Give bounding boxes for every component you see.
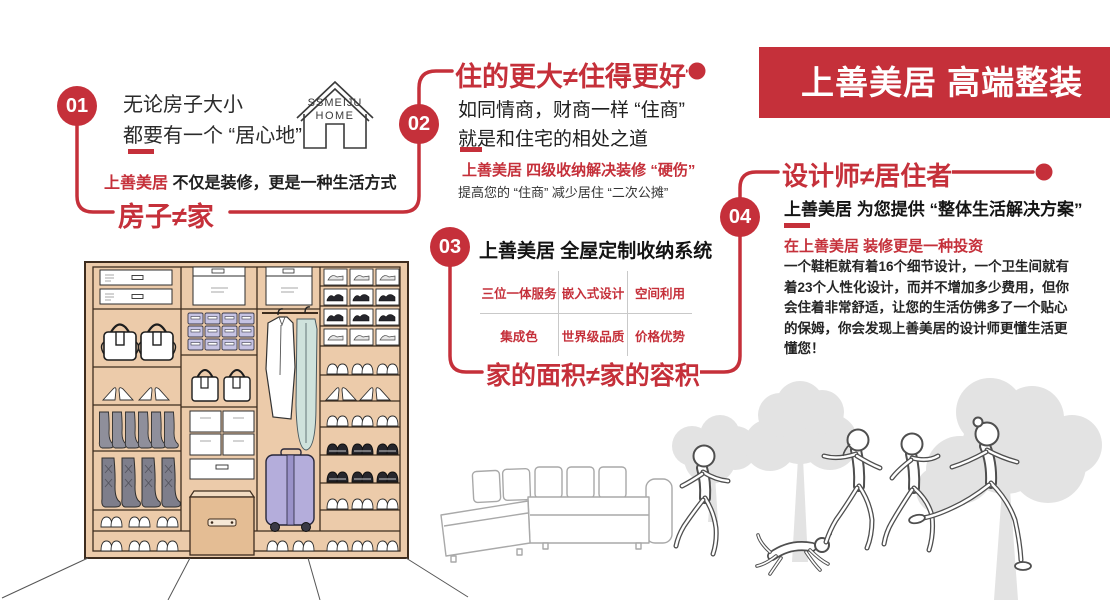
- section2-subline-black: 提高您的 “住商” 减少居住 “二次公摊”: [458, 182, 668, 201]
- step-circle-04: 04: [720, 197, 760, 237]
- section1-sub-brand: 上善美居: [104, 175, 168, 192]
- home-logo-icon: SSMEIJU HOME: [291, 74, 379, 154]
- brand-banner-title: 上善美居 高端整装: [759, 47, 1110, 118]
- running-family-scene: [640, 350, 1110, 600]
- sofa-illustration: [433, 453, 678, 565]
- section4-title: 上善美居 为您提供 “整体生活解决方案”: [784, 195, 1082, 220]
- section4-headline: 设计师≠居住者: [782, 156, 952, 193]
- section2-body: 如同情商，财商一样 “住商” 就是和住宅的相处之道: [458, 96, 685, 154]
- grid-cell: 价格优势: [628, 313, 692, 356]
- section1-headline: 房子≠家: [118, 195, 214, 234]
- tree-silhouette: [672, 378, 1102, 600]
- step-circle-03: 03: [430, 227, 470, 267]
- section4-dash: [784, 223, 810, 228]
- connector-dot: [1036, 164, 1053, 181]
- logo-text-line1: SSMEIJU: [308, 97, 363, 109]
- section4-paragraph: 一个鞋柜就有着16个细节设计，一个卫生间就有着23个人性化设计，而并不增加多少费…: [784, 257, 1076, 360]
- grid-cell: 世界级品质: [558, 313, 628, 356]
- section1-line2: 都要有一个 “居心地”: [123, 121, 302, 152]
- section3-headline: 家的面积≠家的容积: [486, 356, 700, 392]
- step-number: 04: [729, 206, 751, 228]
- section3-title: 上善美居 全屋定制收纳系统: [479, 236, 712, 263]
- section1-line1: 无论房子大小: [123, 90, 302, 121]
- logo-text-line2: HOME: [316, 110, 355, 122]
- grid-cell: 空间利用: [628, 271, 692, 313]
- section2-line2: 就是和住宅的相处之道: [458, 125, 685, 154]
- section2-headline: 住的更大≠住得更好: [455, 55, 686, 94]
- step-number: 03: [439, 236, 461, 258]
- poster: 上善美居 高端整装 SSMEIJU HOME 01 02 03 04 无论房子大…: [0, 0, 1110, 600]
- brand-banner: 上善美居 高端整装: [759, 47, 1110, 118]
- step-number: 01: [66, 95, 88, 117]
- connector-dot: [689, 63, 706, 80]
- grid-cell: 三位一体服务: [480, 271, 558, 313]
- section1-subline: 上善美居 不仅是装修，更是一种生活方式: [104, 169, 396, 193]
- section1-dash: [128, 149, 154, 154]
- grid-cell: 嵌入式设计: [558, 271, 628, 313]
- floor-lines: [2, 558, 468, 600]
- section2-line1: 如同情商，财商一样 “住商”: [458, 96, 685, 125]
- wardrobe-illustration: [0, 255, 480, 600]
- section3-feature-grid: 三位一体服务 嵌入式设计 空间利用 集成色 世界级品质 价格优势: [480, 271, 692, 356]
- section1-body: 无论房子大小 都要有一个 “居心地”: [123, 90, 302, 152]
- section4-subline-red: 在上善美居 装修更是一种投资: [784, 235, 983, 256]
- section2-subline-red: 上善美居 四级收纳解决装修 “硬伤”: [462, 159, 695, 180]
- step-circle-01: 01: [57, 86, 97, 126]
- section1-sub-rest: 不仅是装修，更是一种生活方式: [168, 175, 396, 192]
- step-circle-02: 02: [399, 104, 439, 144]
- section2-dash: [460, 147, 482, 152]
- step-number: 02: [408, 113, 430, 135]
- grid-cell: 集成色: [480, 313, 558, 356]
